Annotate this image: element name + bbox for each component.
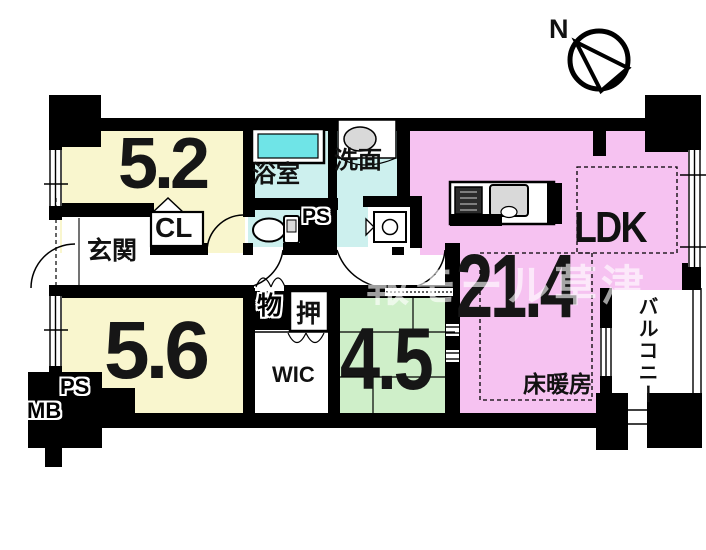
room-bedroom1-size: 5.2 bbox=[118, 128, 206, 200]
window-balcony-door bbox=[600, 328, 612, 376]
room-ldk-size: 21.4 bbox=[456, 242, 574, 332]
storage-label: 物 bbox=[257, 294, 282, 319]
bathtub bbox=[252, 129, 324, 163]
room-washroom-label: 洗面 bbox=[334, 149, 382, 173]
washroom-door-arc bbox=[337, 250, 390, 288]
floor-plan: 5.2 5.6 21.4 4.5 LDK 浴室 洗面 玄関 CL WIC 押 物… bbox=[0, 0, 706, 550]
floor-heating-label: 床暖房 bbox=[523, 373, 592, 396]
ps-bottom-label: PS bbox=[60, 376, 89, 398]
washer-space bbox=[366, 207, 410, 247]
toilet-door-arc bbox=[240, 250, 283, 288]
ldk-door-arc bbox=[405, 250, 445, 288]
tatami-closet-front bbox=[385, 288, 453, 296]
mb-label: MB bbox=[27, 400, 61, 422]
wic-label: WIC bbox=[272, 364, 315, 386]
room-ldk-label: LDK bbox=[574, 206, 646, 250]
wall-bottom bbox=[100, 413, 610, 428]
entrance-label: 玄関 bbox=[87, 239, 137, 264]
oshiire-label: 押 bbox=[296, 302, 321, 327]
floor-plan-drawing bbox=[0, 0, 706, 550]
wic-folding-door bbox=[288, 333, 324, 343]
compass bbox=[570, 31, 628, 91]
room-bedroom2-size: 5.6 bbox=[104, 310, 206, 392]
kitchen-counter bbox=[450, 182, 562, 226]
cl-label: CL bbox=[155, 214, 192, 242]
ps-top-label: PS bbox=[302, 206, 330, 227]
room-tatami-size: 4.5 bbox=[340, 315, 430, 403]
wall-corner-tr bbox=[645, 95, 701, 152]
balcony-label: バルコニー bbox=[636, 296, 656, 406]
room-bath-label: 浴室 bbox=[252, 163, 300, 187]
toilet bbox=[253, 216, 299, 243]
compass-north-label: N bbox=[549, 16, 569, 43]
